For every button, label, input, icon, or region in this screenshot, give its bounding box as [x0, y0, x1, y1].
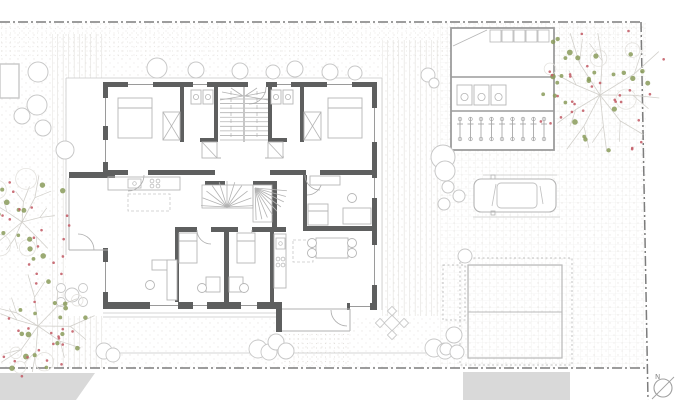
bike-shelter: [451, 28, 554, 150]
parked-car: [473, 175, 560, 217]
neighbor-building: [0, 64, 19, 98]
road-center: [463, 372, 570, 400]
roads: [0, 372, 570, 400]
site-plan-page: N: [0, 0, 677, 400]
north-label: N: [655, 373, 660, 381]
north-arrow: N: [652, 373, 674, 399]
bike-stands: [457, 117, 547, 141]
site-plan-drawing: N: [0, 0, 677, 400]
road-left: [0, 373, 95, 400]
building-floor-plan: [66, 78, 382, 334]
